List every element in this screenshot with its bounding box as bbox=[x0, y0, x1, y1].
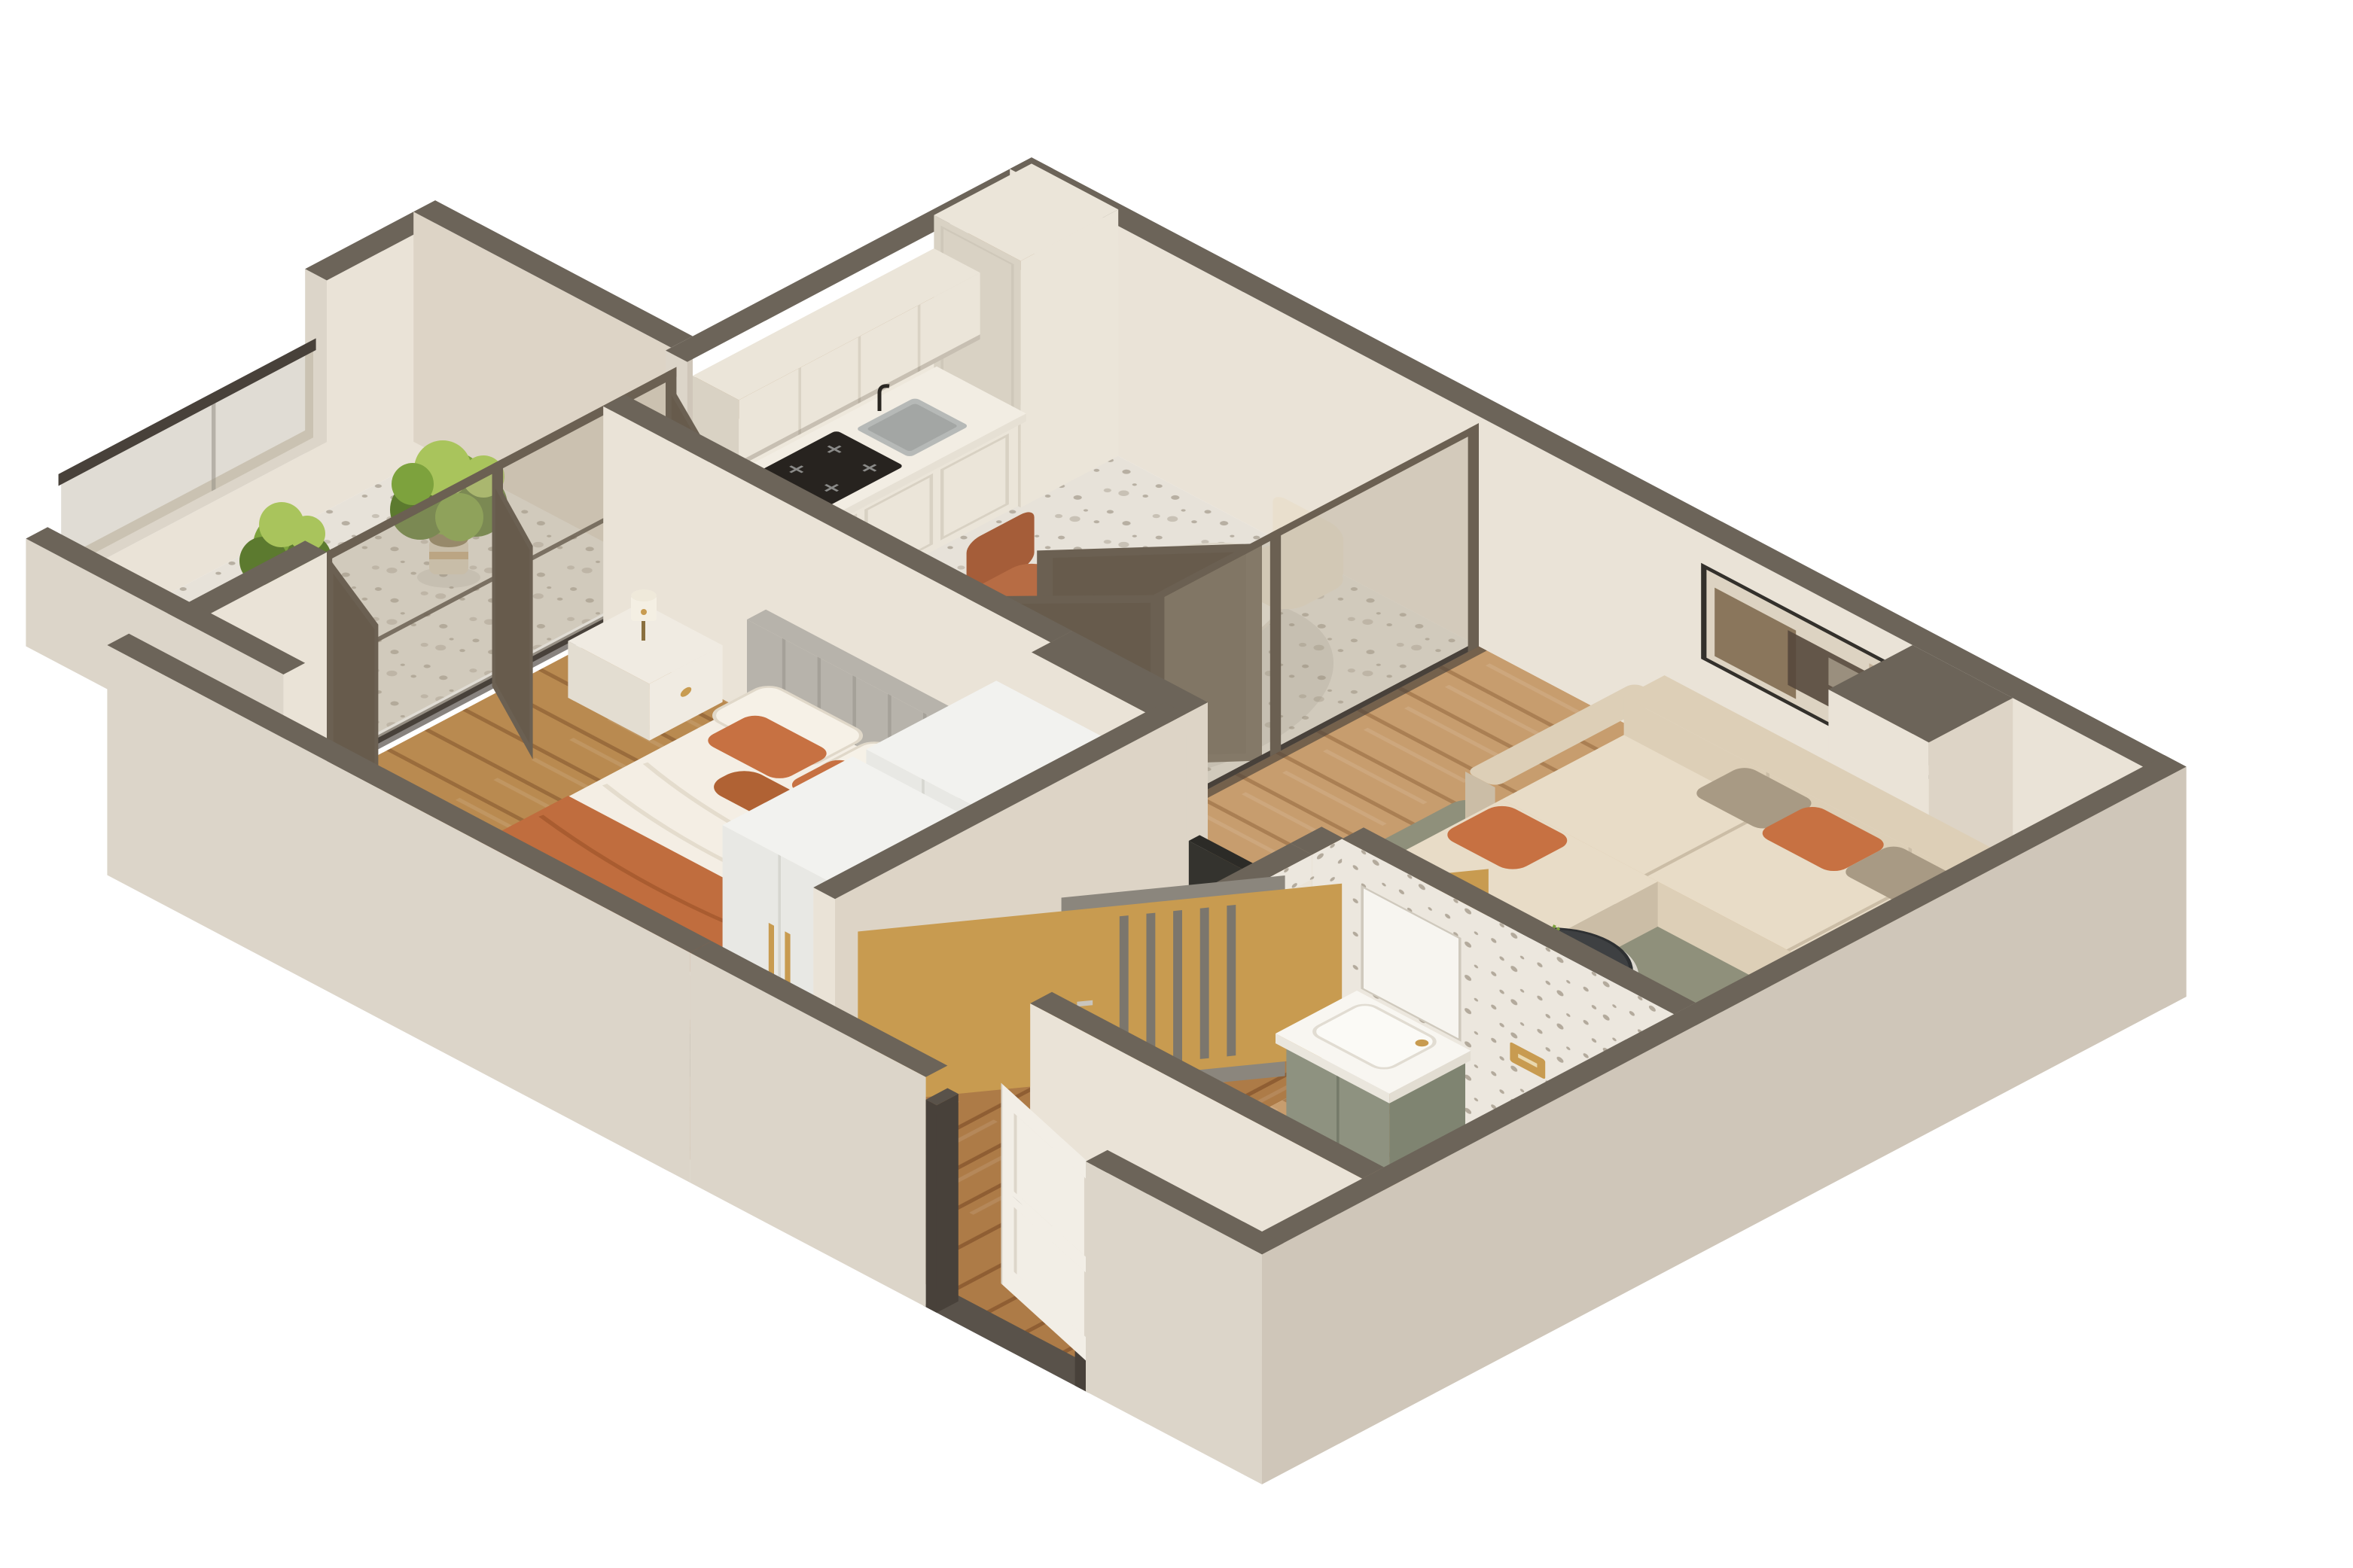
floor-plan-3d-render bbox=[0, 0, 2353, 1568]
floor-plan-stage bbox=[0, 0, 2353, 1568]
apartment bbox=[0, 157, 2187, 1484]
